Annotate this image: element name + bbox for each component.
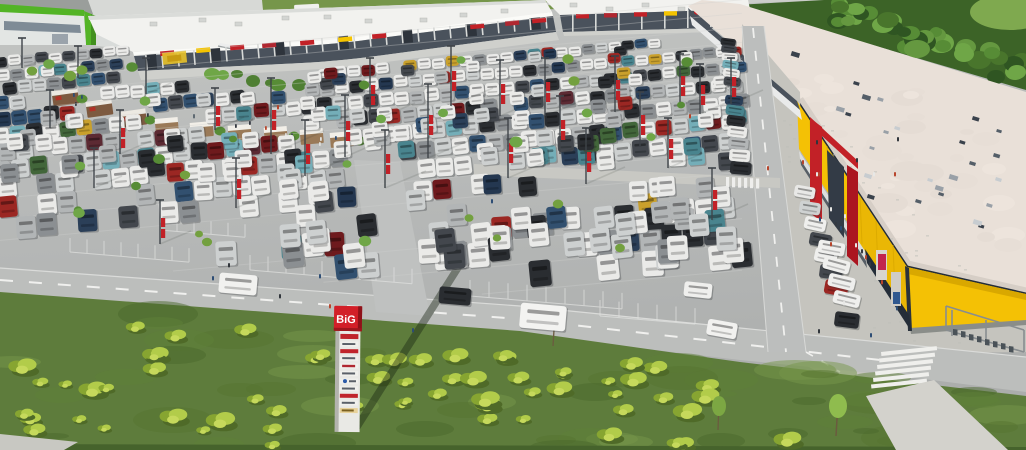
svg-text:BiG: BiG — [336, 314, 356, 326]
